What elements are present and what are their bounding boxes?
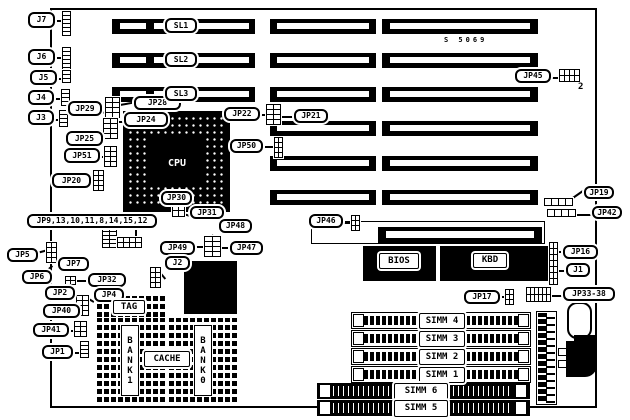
isa-slot-contact — [277, 23, 369, 29]
pin-cell — [81, 332, 86, 336]
pin-cell — [52, 253, 56, 257]
pin-cell — [63, 60, 70, 63]
pin-cell — [60, 111, 67, 114]
label-j1: J1 — [566, 263, 590, 277]
pin-cell — [535, 288, 538, 294]
pin-cell — [565, 76, 569, 81]
label-bios: BIOS — [379, 253, 419, 269]
label-sl2: SL2 — [165, 52, 197, 67]
pin-cell — [156, 268, 160, 272]
jumper-block-jp50 — [274, 137, 283, 158]
pin-cell — [113, 103, 119, 107]
isa-slot-contact — [390, 57, 530, 63]
jumper-block-jp51 — [104, 146, 117, 167]
pin-cell — [94, 171, 98, 175]
pin-cell — [506, 290, 509, 294]
pin-cell — [279, 143, 282, 147]
simm-clip-right — [515, 384, 527, 398]
isa-slot-contact — [386, 231, 534, 238]
pin-cell — [352, 216, 355, 220]
label-jp51: JP51 — [64, 148, 100, 163]
pin-cell — [510, 300, 513, 304]
pin-cell — [267, 115, 273, 119]
pin-cell — [130, 243, 135, 247]
label-jp5: JP5 — [7, 248, 38, 262]
pin-cell — [83, 296, 88, 300]
pin-cell — [539, 288, 542, 294]
label-jp40: JP40 — [43, 304, 80, 318]
jumper-block-j7 — [62, 11, 71, 36]
isa-slot-contact — [390, 125, 530, 131]
pin-cell — [47, 258, 51, 262]
jumper-block-j3 — [59, 110, 68, 127]
jumper-block-jp17 — [505, 289, 514, 305]
jp45-pin1-number: 2 — [578, 82, 583, 92]
pin-cell — [205, 237, 212, 241]
pin-cell — [136, 243, 141, 247]
pin-cell — [63, 75, 70, 78]
label-jp1: JP1 — [42, 345, 73, 359]
label-j2: J2 — [165, 256, 190, 270]
pin-cell — [555, 210, 561, 216]
pin-cell — [111, 129, 117, 133]
pin-cell — [103, 236, 109, 239]
pin-cell — [94, 176, 98, 180]
pin-cell — [510, 290, 513, 294]
pin-cell — [60, 119, 67, 122]
pin-cell — [550, 249, 553, 254]
pin-cell — [267, 105, 273, 109]
jumper-block-jp9b — [117, 237, 142, 248]
label-simm2: SIMM 2 — [419, 349, 465, 365]
pin-cell — [62, 90, 69, 93]
pin-cell — [111, 147, 116, 151]
simm-clip-right — [518, 314, 529, 327]
label-jp2: JP2 — [45, 286, 75, 300]
pin-cell — [570, 76, 574, 81]
pin-cell — [118, 238, 123, 242]
pin-cell — [104, 134, 110, 138]
pin-cell — [274, 110, 280, 114]
isa-slot-contact — [390, 23, 530, 29]
jumper-block-jp5 — [46, 242, 57, 263]
pin-cell — [113, 113, 119, 117]
pin-cell — [105, 147, 110, 151]
vlb-slot-contact — [120, 57, 146, 63]
pin-cell — [104, 119, 110, 123]
pin-cell — [550, 261, 553, 266]
pin-cell — [554, 273, 557, 278]
label-jp16: JP16 — [563, 245, 598, 259]
pin-cell — [110, 240, 116, 243]
pin-cell — [565, 70, 569, 75]
jumper-block-j6 — [62, 47, 71, 72]
motherboard-diagram: S 5069 2 J7J6J5J4J3JP29JP28JP24JP25JP51J… — [0, 0, 630, 420]
power-connector-cells — [546, 313, 555, 403]
label-jp30: JP30 — [161, 191, 192, 205]
simm-clip-right — [518, 368, 529, 381]
pin-cell — [130, 238, 135, 242]
label-jp41: JP41 — [33, 323, 69, 337]
pin-cell — [124, 243, 129, 247]
pin-cell — [559, 199, 565, 205]
label-kbd: KBD — [473, 253, 507, 268]
pin-cell — [531, 295, 534, 301]
label-jp32: JP32 — [88, 273, 126, 287]
pin-cell — [106, 113, 112, 117]
pin-cell — [560, 70, 564, 75]
isa-slot-contact — [390, 91, 530, 97]
pin-cell — [118, 243, 123, 247]
label-jp50: JP50 — [230, 139, 263, 153]
pin-cell — [151, 273, 155, 277]
pin-cell — [99, 176, 103, 180]
pin-cell — [547, 295, 550, 301]
leader-line — [575, 214, 593, 216]
pin-cell — [356, 221, 359, 225]
pin-cell — [104, 129, 110, 133]
pin-cell — [94, 181, 98, 185]
pin-cell — [527, 288, 530, 294]
label-j7: J7 — [28, 12, 55, 28]
pin-cell — [570, 70, 574, 75]
pin-cell — [274, 120, 280, 124]
pin-cell — [213, 252, 220, 256]
pin-cell — [535, 295, 538, 301]
pin-cell — [94, 186, 98, 190]
pin-cell — [543, 288, 546, 294]
pin-cell — [352, 221, 355, 225]
pin-cell — [81, 354, 88, 357]
pin-cell — [52, 248, 56, 252]
pin-cell — [63, 12, 70, 15]
label-bank0: BANK0 — [194, 325, 212, 396]
simm-clip-left — [319, 401, 331, 415]
pin-cell — [63, 56, 70, 59]
label-jp29: JP29 — [68, 101, 102, 116]
pin-cell — [81, 322, 86, 326]
jumper-block-jp3338 — [526, 287, 551, 302]
label-j6: J6 — [28, 49, 55, 65]
label-jp33_38: JP33-38 — [563, 287, 615, 301]
pin-cell — [569, 210, 575, 216]
label-jp42: JP42 — [592, 206, 622, 219]
pin-cell — [103, 244, 109, 247]
label-sl3: SL3 — [165, 86, 197, 101]
isa-slot-contact — [277, 57, 369, 63]
keyboard-connector-body — [566, 341, 597, 377]
pin-cell — [506, 300, 509, 304]
din-connector-outline — [567, 302, 592, 339]
jumper-block-jp2122 — [266, 104, 281, 125]
isa-slot-contact — [390, 194, 530, 200]
pin-cell — [63, 79, 70, 82]
pin-cell — [506, 295, 509, 299]
pin-cell — [81, 346, 88, 349]
pin-cell — [205, 252, 212, 256]
label-jp49: JP49 — [160, 241, 195, 255]
pin-cell — [548, 210, 554, 216]
pin-cell — [63, 64, 70, 67]
pin-cell — [213, 242, 220, 246]
pin-cell — [106, 103, 112, 107]
pin-cell — [75, 327, 80, 331]
pin-cell — [99, 186, 103, 190]
label-jp31: JP31 — [190, 206, 224, 219]
pin-cell — [124, 238, 129, 242]
pin-cell — [111, 119, 117, 123]
pin-cell — [52, 243, 56, 247]
pin-cell — [173, 211, 178, 216]
pin-cell — [106, 98, 112, 102]
pin-cell — [63, 28, 70, 31]
isa-slot-contact — [277, 125, 369, 131]
pin-cell — [99, 171, 103, 175]
label-jp21: JP21 — [294, 109, 328, 123]
pin-cell — [83, 311, 88, 315]
pin-cell — [267, 120, 273, 124]
label-bank1: BANK1 — [121, 325, 139, 396]
isa-slot-contact — [277, 91, 369, 97]
label-jp46: JP46 — [309, 214, 343, 228]
jumper-block-kbcon — [549, 242, 558, 285]
pin-cell — [275, 153, 278, 157]
jumper-block-j5 — [62, 70, 71, 83]
pin-cell — [63, 48, 70, 51]
pin-cell — [113, 108, 119, 112]
pin-cell — [552, 199, 558, 205]
pin-cell — [63, 52, 70, 55]
pin-cell — [60, 115, 67, 118]
pin-cell — [63, 20, 70, 23]
pin-cell — [539, 295, 542, 301]
pin-cell — [113, 98, 119, 102]
simm-clip-right — [518, 332, 529, 345]
pin-cell — [205, 242, 212, 246]
label-jp24: JP24 — [124, 112, 168, 127]
pin-cell — [106, 108, 112, 112]
vlb-slot-contact — [120, 23, 146, 29]
pin-cell — [52, 258, 56, 262]
pin-cell — [510, 295, 513, 299]
pin-cell — [267, 110, 273, 114]
simm-clip-right — [518, 350, 529, 363]
label-simm6: SIMM 6 — [394, 383, 448, 400]
pin-cell — [547, 288, 550, 294]
pin-cell — [279, 153, 282, 157]
label-simm4: SIMM 4 — [419, 313, 465, 329]
pin-cell — [352, 226, 355, 230]
isa-slot-contact — [277, 194, 369, 200]
jumper-block-jp9a — [102, 227, 117, 248]
pin-cell — [104, 124, 110, 128]
pin-cell — [81, 350, 88, 353]
label-jp6: JP6 — [22, 270, 52, 284]
pin-cell — [111, 152, 116, 156]
keyboard-connector-tab — [558, 360, 567, 368]
label-jp7: JP7 — [58, 257, 89, 271]
pin-cell — [543, 295, 546, 301]
pin-cell — [279, 138, 282, 142]
pin-cell — [279, 148, 282, 152]
simm-clip-left — [353, 314, 364, 327]
label-jp9: JP9,13,10,11,8,14,15,12 — [27, 214, 157, 228]
jumper-block-jp30 — [172, 204, 185, 217]
pin-cell — [575, 76, 579, 81]
pin-cell — [99, 181, 103, 185]
jumper-block-jp1 — [80, 341, 89, 358]
label-jp17: JP17 — [464, 290, 500, 304]
pin-cell — [560, 76, 564, 81]
pin-cell — [66, 281, 70, 284]
label-cpu: CPU — [158, 155, 196, 171]
label-tag: TAG — [113, 300, 145, 314]
pin-cell — [550, 243, 553, 248]
pin-cell — [550, 273, 553, 278]
pin-cell — [575, 70, 579, 75]
simm-clip-right — [515, 401, 527, 415]
pin-cell — [179, 211, 184, 216]
pin-cell — [71, 277, 75, 280]
pin-cell — [63, 32, 70, 35]
simm-clip-left — [319, 384, 331, 398]
pin-cell — [110, 244, 116, 247]
pin-cell — [275, 148, 278, 152]
pin-cell — [156, 273, 160, 277]
jumper-block-jp42 — [547, 209, 576, 217]
pin-cell — [527, 295, 530, 301]
pin-cell — [274, 115, 280, 119]
label-j5: J5 — [30, 70, 57, 85]
pin-cell — [173, 205, 178, 210]
label-jp22: JP22 — [224, 107, 260, 121]
pin-cell — [103, 232, 109, 235]
pin-cell — [554, 267, 557, 272]
simm-clip-left — [353, 368, 364, 381]
simm-clip-left — [353, 350, 364, 363]
pin-cell — [156, 278, 160, 282]
pin-cell — [136, 238, 141, 242]
pin-cell — [550, 279, 553, 284]
label-jp25: JP25 — [66, 131, 103, 146]
pin-cell — [60, 123, 67, 126]
pin-cell — [83, 301, 88, 305]
jumper-block-jp49 — [204, 236, 221, 257]
jumper-block-jp41 — [74, 321, 87, 337]
pin-cell — [81, 342, 88, 345]
pin-cell — [356, 216, 359, 220]
qfp-chip — [184, 261, 237, 314]
pin-cell — [66, 277, 70, 280]
simm-clip-left — [353, 332, 364, 345]
pin-cell — [111, 134, 117, 138]
label-jp19: JP19 — [584, 186, 614, 199]
power-connector — [536, 311, 557, 405]
pin-cell — [562, 210, 568, 216]
pin-cell — [75, 332, 80, 336]
pin-cell — [110, 232, 116, 235]
pin-cell — [110, 228, 116, 231]
pin-cell — [111, 124, 117, 128]
pin-cell — [83, 306, 88, 310]
jumper-block-jp29a — [105, 97, 120, 118]
pin-cell — [63, 71, 70, 74]
pin-cell — [550, 255, 553, 260]
label-jp45: JP45 — [515, 69, 551, 83]
pin-cell — [63, 16, 70, 19]
label-jp20: JP20 — [52, 173, 91, 188]
pin-cell — [103, 228, 109, 231]
pin-cell — [103, 240, 109, 243]
pin-cell — [105, 152, 110, 156]
pin-cell — [531, 288, 534, 294]
pin-cell — [47, 243, 51, 247]
pin-cell — [550, 267, 553, 272]
pin-cell — [47, 253, 51, 257]
pin-cell — [105, 162, 110, 166]
pin-cell — [71, 281, 75, 284]
isa-slot-contact — [277, 160, 369, 166]
pin-cell — [275, 138, 278, 142]
label-jp48: JP48 — [219, 219, 252, 233]
label-jp47: JP47 — [230, 241, 263, 255]
pin-cell — [75, 322, 80, 326]
pin-cell — [111, 162, 116, 166]
jumper-block-jp46 — [351, 215, 360, 231]
jumper-block-jp45 — [559, 69, 580, 82]
pin-cell — [47, 248, 51, 252]
pin-cell — [105, 157, 110, 161]
pin-cell — [81, 327, 86, 331]
pin-cell — [156, 283, 160, 287]
pin-cell — [554, 255, 557, 260]
pin-cell — [110, 236, 116, 239]
pin-cell — [151, 283, 155, 287]
label-simm5: SIMM 5 — [394, 400, 448, 417]
pin-cell — [213, 247, 220, 251]
jumper-block-jp19 — [544, 198, 573, 206]
pin-cell — [554, 261, 557, 266]
jumper-block-j2 — [150, 267, 161, 288]
label-simm1: SIMM 1 — [419, 367, 465, 383]
label-sl1: SL1 — [165, 18, 197, 33]
pin-cell — [356, 226, 359, 230]
pin-cell — [566, 199, 572, 205]
pin-cell — [213, 237, 220, 241]
isa-slot-contact — [390, 160, 530, 166]
jumper-block-jp32 — [65, 276, 76, 285]
pin-cell — [77, 296, 82, 300]
jumper-block-jp29b — [103, 118, 118, 139]
pin-cell — [62, 98, 69, 101]
pin-cell — [554, 243, 557, 248]
keyboard-connector-tab — [558, 348, 567, 356]
pin-cell — [111, 157, 116, 161]
pin-cell — [62, 94, 69, 97]
pin-cell — [275, 143, 278, 147]
pin-cell — [545, 199, 551, 205]
label-j4: J4 — [28, 90, 54, 105]
pin-cell — [554, 249, 557, 254]
pin-cell — [151, 268, 155, 272]
pin-cell — [179, 205, 184, 210]
pin-cell — [554, 279, 557, 284]
jumper-block-jp20 — [93, 170, 104, 191]
pin-cell — [205, 247, 212, 251]
pin-cell — [274, 105, 280, 109]
label-j3: J3 — [28, 110, 54, 125]
label-simm3: SIMM 3 — [419, 331, 465, 347]
